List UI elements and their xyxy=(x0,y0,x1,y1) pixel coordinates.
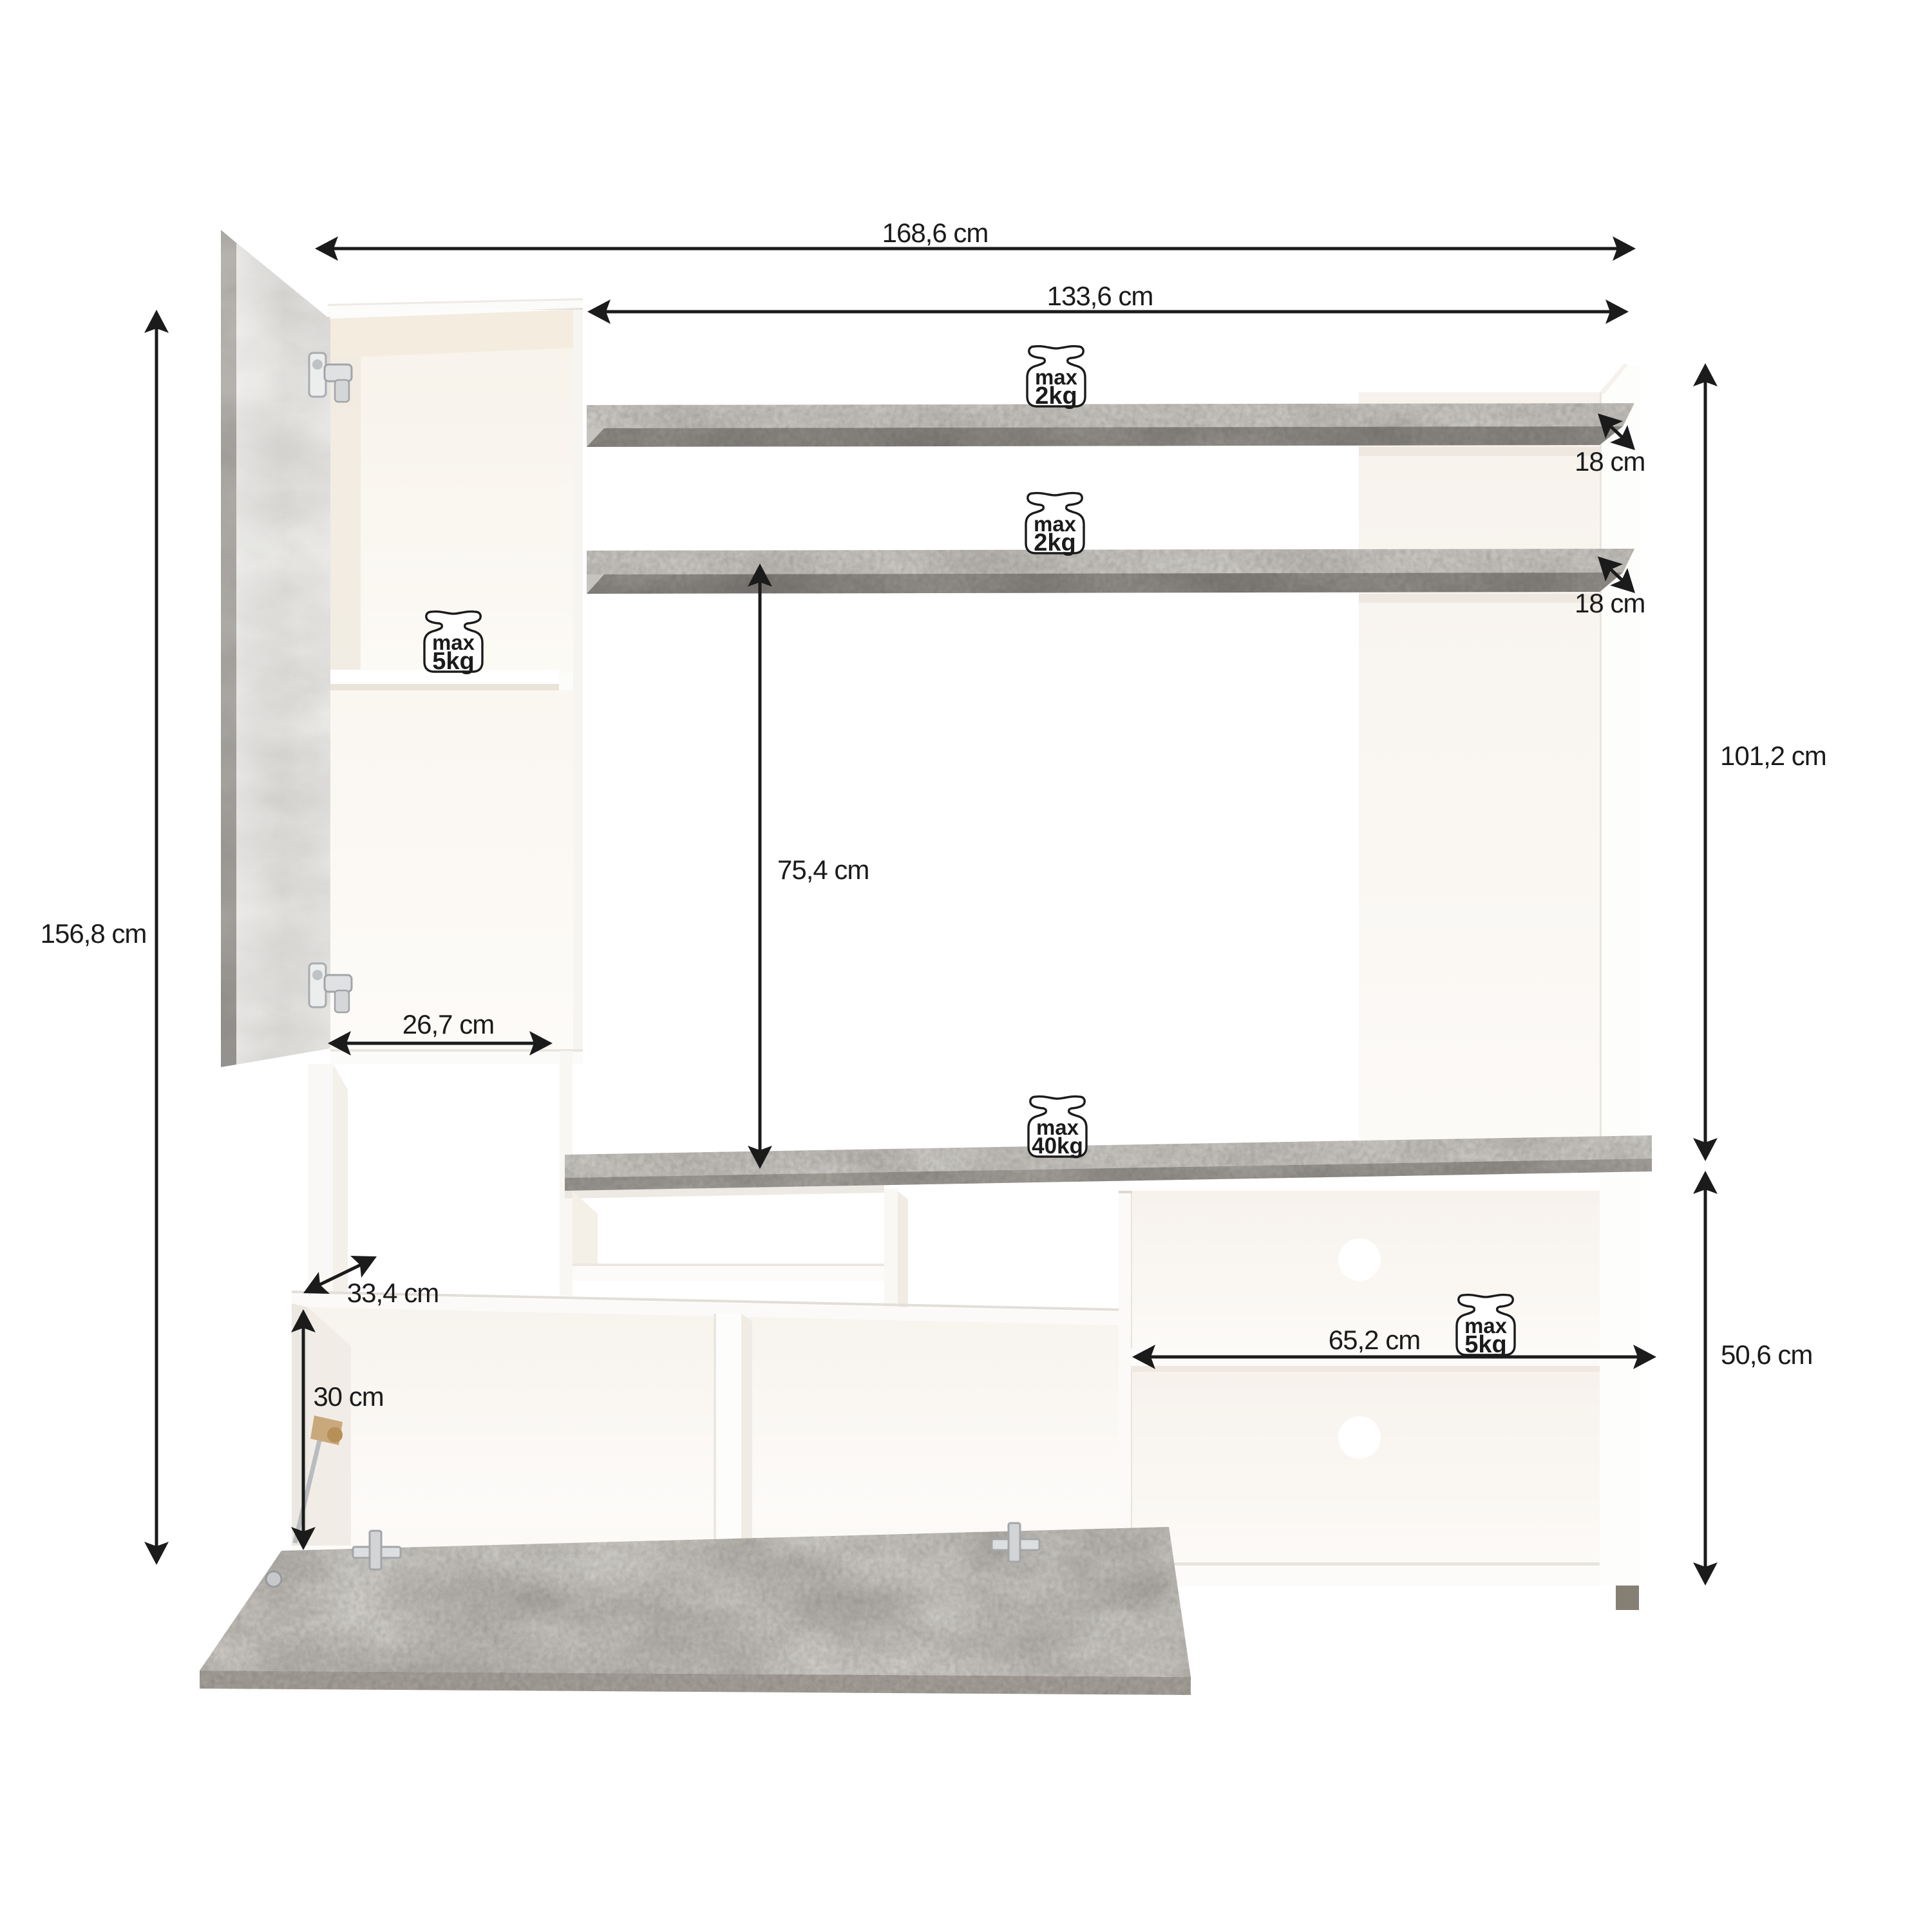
svg-text:65,2 cm: 65,2 cm xyxy=(1329,1325,1420,1355)
svg-text:2kg: 2kg xyxy=(1035,383,1077,410)
svg-text:18 cm: 18 cm xyxy=(1575,446,1645,477)
svg-text:33,4 cm: 33,4 cm xyxy=(347,1278,439,1308)
svg-text:75,4 cm: 75,4 cm xyxy=(777,855,869,885)
svg-text:168,6 cm: 168,6 cm xyxy=(882,218,989,248)
svg-text:133,6 cm: 133,6 cm xyxy=(1047,281,1153,311)
svg-text:101,2 cm: 101,2 cm xyxy=(1720,741,1826,771)
svg-text:40kg: 40kg xyxy=(1032,1133,1083,1159)
svg-text:18 cm: 18 cm xyxy=(1575,588,1645,618)
svg-text:5kg: 5kg xyxy=(1464,1331,1506,1358)
svg-text:26,7 cm: 26,7 cm xyxy=(402,1009,494,1039)
svg-text:156,8 cm: 156,8 cm xyxy=(41,918,147,949)
svg-text:2kg: 2kg xyxy=(1034,529,1075,556)
svg-text:50,6 cm: 50,6 cm xyxy=(1721,1340,1812,1370)
svg-text:30 cm: 30 cm xyxy=(313,1381,383,1412)
svg-text:5kg: 5kg xyxy=(432,648,474,675)
